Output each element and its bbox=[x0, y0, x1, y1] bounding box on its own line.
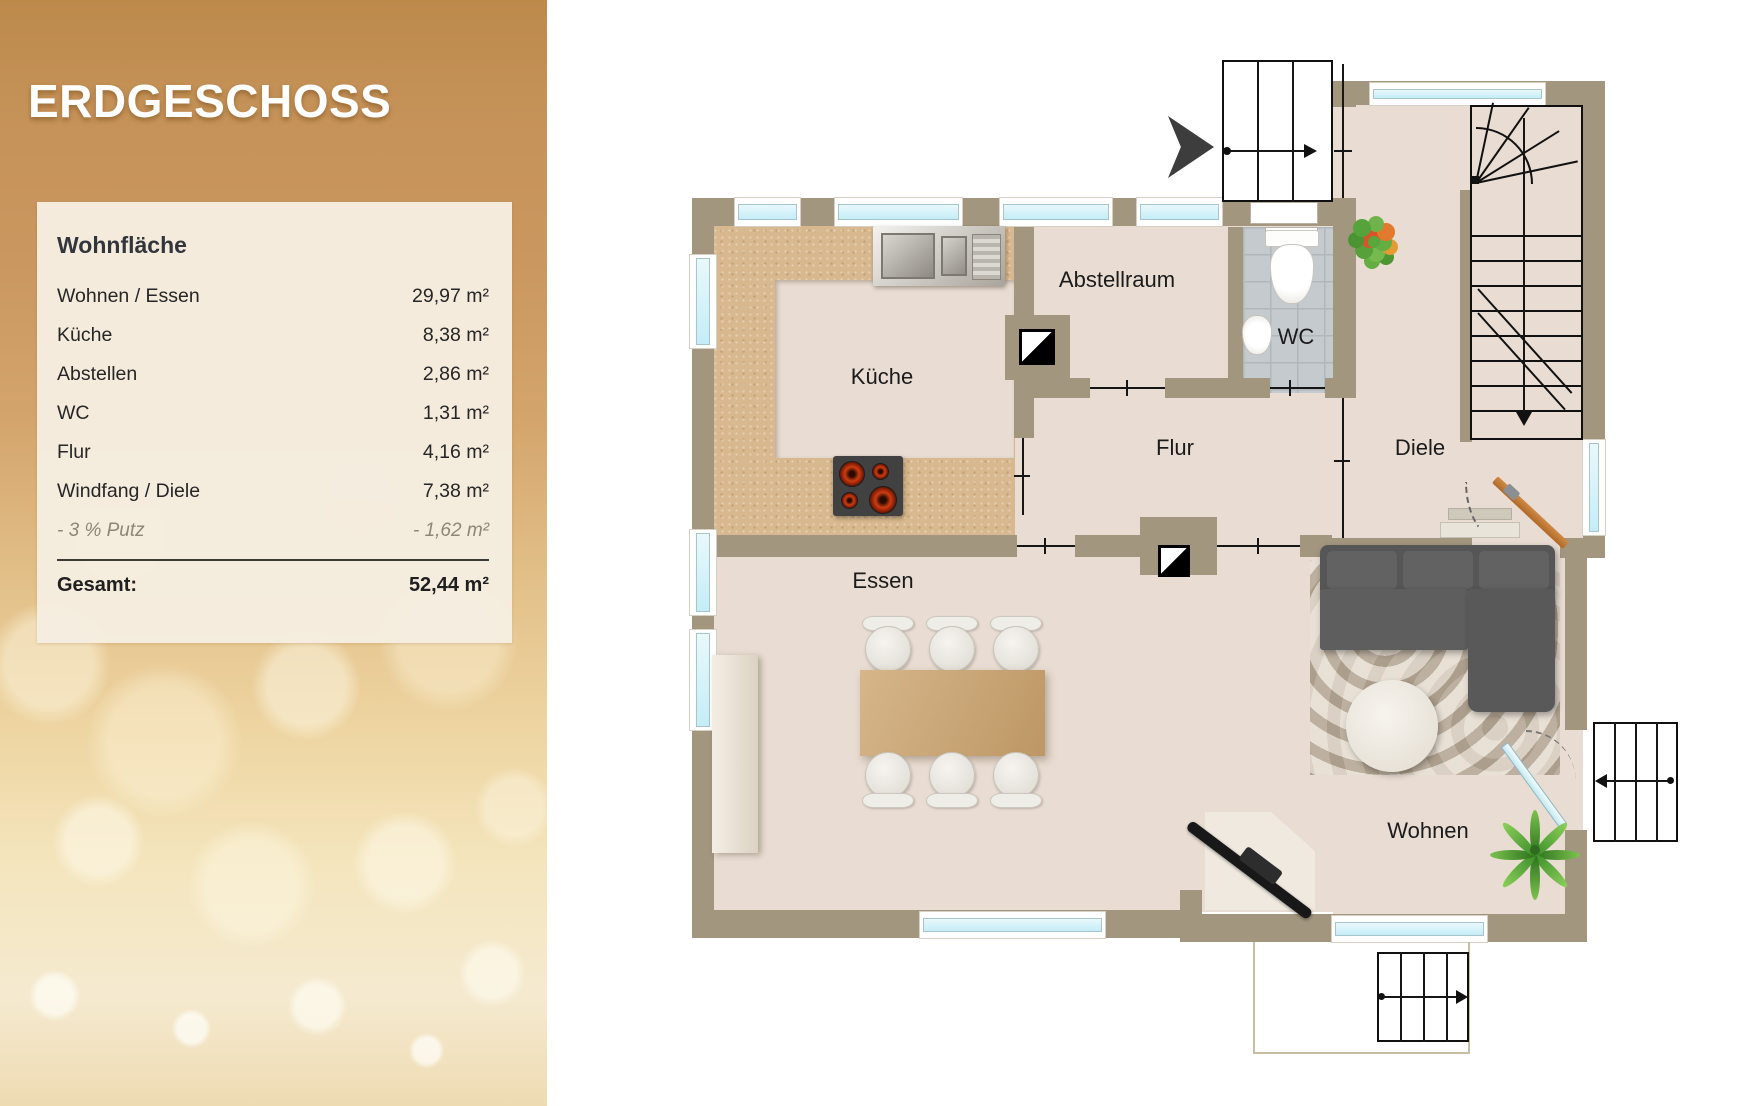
area-row-value: 1,31 m² bbox=[423, 402, 489, 425]
chair bbox=[926, 793, 978, 808]
area-row-value: 29,97 m² bbox=[412, 285, 489, 308]
door-tick bbox=[1257, 538, 1259, 554]
door-tick bbox=[1044, 538, 1046, 554]
dining-table bbox=[860, 670, 1045, 756]
kitchen-drainer bbox=[972, 234, 1001, 280]
total-label: Gesamt: bbox=[57, 574, 137, 597]
area-row-value: 8,38 m² bbox=[423, 324, 489, 347]
door-tick bbox=[1014, 475, 1030, 477]
door-opening bbox=[1270, 387, 1325, 389]
area-row-label: Wohnen / Essen bbox=[57, 285, 200, 308]
wall bbox=[1333, 81, 1356, 107]
sidebar: ERDGESCHOSS Wohnfläche Wohnen / Essen 29… bbox=[0, 0, 547, 1106]
area-total-row: Gesamt: 52,44 m² bbox=[57, 561, 489, 607]
stair-tread bbox=[1472, 285, 1581, 287]
level-marker-icon bbox=[1019, 329, 1055, 365]
room-label-kueche: Küche bbox=[851, 364, 913, 390]
area-row: Küche 8,38 m² bbox=[57, 316, 489, 355]
window bbox=[1370, 83, 1545, 105]
sofa-seat bbox=[1320, 589, 1468, 650]
stair-tread bbox=[1472, 310, 1581, 312]
step-direction-line bbox=[1381, 996, 1457, 998]
stair-tread bbox=[1472, 335, 1581, 337]
stair-tread bbox=[1472, 235, 1581, 237]
chair bbox=[862, 793, 914, 808]
kitchen-sink-bowl-small bbox=[941, 236, 967, 276]
kitchen-sink-bowl bbox=[881, 233, 935, 279]
window-pane bbox=[696, 633, 710, 727]
area-row: Abstellen 2,86 m² bbox=[57, 355, 489, 394]
area-row-deduction: - 3 % Putz - 1,62 m² bbox=[57, 511, 489, 550]
window-pane bbox=[738, 204, 797, 220]
sideboard bbox=[712, 655, 758, 853]
window bbox=[690, 255, 716, 348]
level-marker-icon bbox=[1158, 545, 1190, 577]
coffee-table bbox=[1346, 680, 1438, 772]
chair bbox=[993, 626, 1039, 672]
wall bbox=[1333, 227, 1356, 393]
step-direction-line bbox=[1605, 780, 1669, 782]
sofa-cushion bbox=[1479, 551, 1549, 589]
living-area-card: Wohnfläche Wohnen / Essen 29,97 m² Küche… bbox=[37, 202, 512, 643]
stair-hub bbox=[1471, 176, 1479, 184]
area-row-label: Windfang / Diele bbox=[57, 480, 200, 503]
floor-plan: Küche Abstellraum WC Flur Diele Essen Wo… bbox=[620, 40, 1700, 1070]
area-row: Windfang / Diele 7,38 m² bbox=[57, 472, 489, 511]
step-direction-arrowhead bbox=[1595, 774, 1607, 788]
deduction-label: - 3 % Putz bbox=[57, 520, 145, 542]
window-pane bbox=[696, 258, 710, 345]
room-label-essen: Essen bbox=[852, 568, 913, 594]
door-tick bbox=[1334, 460, 1350, 462]
window-pane bbox=[1140, 204, 1219, 220]
window-pane bbox=[1335, 922, 1484, 936]
chair bbox=[990, 793, 1042, 808]
window bbox=[1137, 198, 1222, 226]
stair-walkline-arrowhead bbox=[1516, 412, 1532, 426]
chair bbox=[865, 626, 911, 672]
window bbox=[920, 912, 1105, 938]
area-row-label: Küche bbox=[57, 324, 112, 347]
door-tick bbox=[1334, 150, 1352, 152]
wall bbox=[1228, 227, 1243, 378]
step-divider bbox=[1292, 60, 1294, 202]
step-divider bbox=[1614, 722, 1616, 842]
wall bbox=[1034, 378, 1090, 398]
total-value: 52,44 m² bbox=[409, 574, 489, 597]
door-tick bbox=[1126, 380, 1128, 396]
window bbox=[690, 530, 716, 615]
area-row: WC 1,31 m² bbox=[57, 394, 489, 433]
area-row-label: Flur bbox=[57, 441, 91, 464]
stair-tread bbox=[1472, 360, 1581, 362]
area-row-value: 4,16 m² bbox=[423, 441, 489, 464]
door-opening bbox=[1342, 64, 1344, 198]
sofa-cushion bbox=[1327, 551, 1397, 589]
step-divider bbox=[1635, 722, 1637, 842]
sofa-cushion bbox=[1403, 551, 1473, 589]
area-row: Wohnen / Essen 29,97 m² bbox=[57, 277, 489, 316]
chair bbox=[929, 626, 975, 672]
window-pane bbox=[923, 918, 1102, 932]
entrance-arrow-icon bbox=[1168, 116, 1214, 178]
room-label-wohnen: Wohnen bbox=[1387, 818, 1469, 844]
room-label-wc: WC bbox=[1278, 324, 1315, 350]
window-pane bbox=[1373, 89, 1542, 99]
stove-burner bbox=[869, 486, 897, 514]
wall bbox=[1565, 558, 1587, 730]
stove-burner bbox=[841, 492, 858, 509]
entry-sidelight-window bbox=[1583, 440, 1605, 535]
step-divider bbox=[1257, 60, 1259, 202]
stove-burner bbox=[872, 463, 889, 480]
area-row: Flur 4,16 m² bbox=[57, 433, 489, 472]
room-label-flur: Flur bbox=[1156, 435, 1194, 461]
chair bbox=[865, 752, 911, 798]
step-direction-dot bbox=[1667, 777, 1674, 784]
window bbox=[1332, 916, 1487, 942]
window bbox=[835, 198, 962, 226]
area-row-value: 2,86 m² bbox=[423, 363, 489, 386]
window bbox=[735, 198, 800, 226]
deduction-value: - 1,62 m² bbox=[413, 520, 489, 542]
window bbox=[1000, 198, 1112, 226]
wall bbox=[712, 535, 1017, 557]
card-heading: Wohnfläche bbox=[57, 232, 489, 259]
step-direction-dot bbox=[1378, 993, 1385, 1000]
wall bbox=[1075, 535, 1140, 557]
chair bbox=[993, 752, 1039, 798]
wall bbox=[1180, 890, 1202, 942]
window-pane bbox=[696, 533, 710, 612]
wall bbox=[1333, 200, 1356, 227]
wall bbox=[1165, 378, 1243, 398]
wc-window bbox=[1250, 202, 1318, 224]
wall bbox=[1325, 378, 1356, 398]
window-pane bbox=[838, 204, 959, 220]
room-label-abstellraum: Abstellraum bbox=[1059, 267, 1175, 293]
room-label-diele: Diele bbox=[1395, 435, 1445, 461]
stair-walkline bbox=[1523, 118, 1525, 414]
door-opening bbox=[1342, 398, 1344, 538]
plant-icon bbox=[1368, 236, 1380, 248]
sofa-chaise bbox=[1468, 589, 1555, 712]
door-opening bbox=[1017, 545, 1075, 547]
stair-tread bbox=[1472, 260, 1581, 262]
entry-direction-arrowhead bbox=[1304, 144, 1317, 158]
stove-burner bbox=[839, 461, 865, 487]
step-direction-arrowhead bbox=[1456, 990, 1468, 1004]
entry-direction-dot bbox=[1223, 147, 1231, 155]
wc-sink bbox=[1242, 315, 1272, 355]
palm-plant-icon bbox=[1492, 812, 1578, 898]
window-pane bbox=[1003, 204, 1109, 220]
page-title: ERDGESCHOSS bbox=[28, 74, 391, 128]
palm-center bbox=[1530, 845, 1540, 855]
area-row-label: Abstellen bbox=[57, 363, 137, 386]
wall bbox=[1243, 378, 1270, 398]
area-row-value: 7,38 m² bbox=[423, 480, 489, 503]
step-divider bbox=[1656, 722, 1658, 842]
entrance-steps bbox=[1222, 60, 1333, 202]
window-pane bbox=[1589, 443, 1599, 532]
door-tick bbox=[1289, 380, 1291, 396]
area-row-label: WC bbox=[57, 402, 90, 425]
entry-direction-line bbox=[1226, 150, 1306, 152]
chair bbox=[929, 752, 975, 798]
